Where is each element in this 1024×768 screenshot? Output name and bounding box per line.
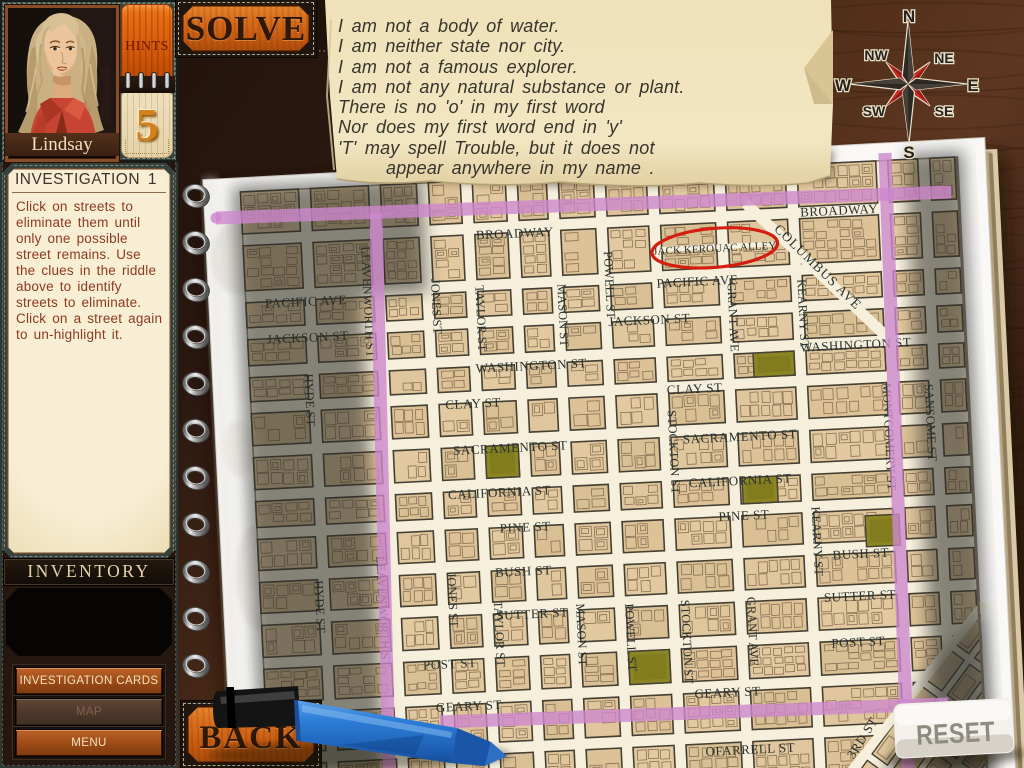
svg-text:RESET: RESET xyxy=(915,717,995,752)
